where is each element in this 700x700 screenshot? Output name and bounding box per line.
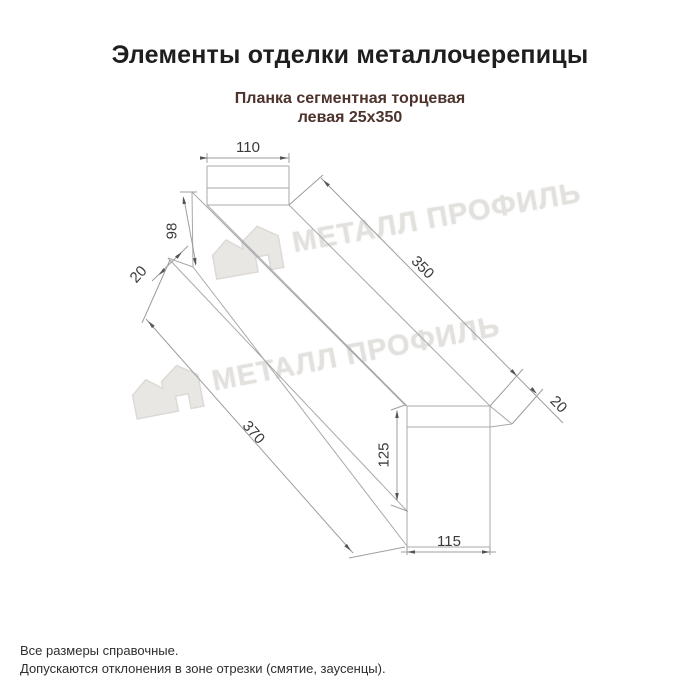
- arrowhead: [181, 196, 186, 205]
- dimension-near-hem: 20: [127, 246, 188, 286]
- dimension-length-top: 350 20: [289, 175, 570, 424]
- product-subtitle: Планка сегментная торцевая левая 25х350: [0, 89, 700, 127]
- dim-label-370: 370: [239, 418, 268, 448]
- product-subtitle-line2: левая 25х350: [0, 108, 700, 127]
- dimension-length-bottom: 370: [142, 260, 405, 558]
- footer-note-1: Все размеры справочные.: [20, 642, 386, 660]
- dim-label-125: 125: [375, 442, 392, 467]
- page-title: Элементы отделки металлочерепицы: [0, 41, 700, 70]
- dim-label-20-near: 20: [127, 263, 151, 287]
- near-end-cross-section: [207, 166, 289, 205]
- dim-label-110: 110: [236, 139, 260, 156]
- dim-label-350: 350: [408, 253, 438, 283]
- arrowhead: [280, 156, 288, 160]
- far-end-face: [407, 406, 512, 547]
- arrowhead: [193, 258, 198, 267]
- arrowhead: [395, 410, 399, 418]
- arrowhead: [407, 550, 415, 554]
- dim-label-20-far: 20: [547, 393, 571, 417]
- footer-note-2: Допускаются отклонения в зоне отрезки (с…: [20, 660, 386, 678]
- dimension-end-face-height: 125: [375, 405, 407, 511]
- arrowhead: [482, 550, 490, 554]
- page: МЕТАЛЛ ПРОФИЛЬ МЕТАЛЛ ПРОФИЛЬ: [0, 0, 700, 700]
- dim-label-98: 98: [163, 223, 180, 240]
- dimension-end-face-width: 115: [401, 533, 496, 555]
- product-subtitle-line1: Планка сегментная торцевая: [0, 89, 700, 108]
- dimension-flange-width: 110: [200, 139, 289, 163]
- dim-label-115: 115: [437, 533, 461, 550]
- strip-long-edges: [168, 192, 490, 546]
- arrowhead: [395, 493, 399, 501]
- footer-notes: Все размеры справочные. Допускаются откл…: [20, 642, 386, 678]
